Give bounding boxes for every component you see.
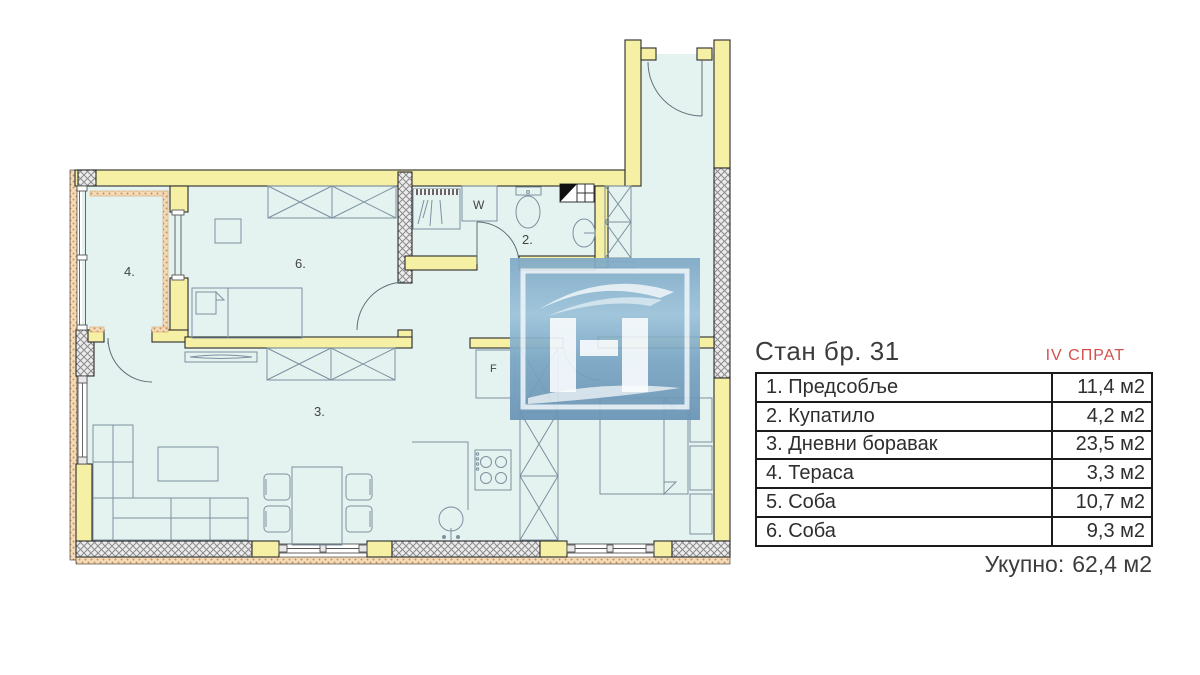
table-row: 2. Купатило 4,2 м2 [757, 403, 1151, 432]
room-area: 3,3 м2 [1053, 460, 1151, 487]
apartment-info-panel: Стан бр. 31 IV СПРАТ 1. Предсобље 11,4 м… [755, 333, 1153, 578]
room-area: 23,5 м2 [1053, 432, 1151, 459]
panel-header: Стан бр. 31 IV СПРАТ [755, 333, 1153, 367]
room-area: 11,4 м2 [1053, 374, 1151, 401]
room-name: 5. Соба [757, 489, 1053, 516]
room-name: 2. Купатило [757, 403, 1053, 430]
room-area: 9,3 м2 [1053, 518, 1151, 545]
fridge-label: F [490, 363, 497, 375]
total-value: 62,4 м2 [1072, 551, 1152, 578]
table-row: 5. Соба 10,7 м2 [757, 489, 1151, 518]
electrical-panel-icon [560, 184, 594, 202]
room-name: 6. Соба [757, 518, 1053, 545]
room-name: 3. Дневни боравак [757, 432, 1053, 459]
room-label-bathroom: 2. [522, 232, 533, 247]
total-label: Укупно: [984, 551, 1064, 578]
room-area: 10,7 м2 [1053, 489, 1151, 516]
room-name: 1. Предсобље [757, 374, 1053, 401]
table-row: 4. Тераса 3,3 м2 [757, 460, 1151, 489]
floor-label: IV СПРАТ [1046, 347, 1125, 367]
washer-label: W [473, 198, 485, 212]
room-area: 4,2 м2 [1053, 403, 1151, 430]
room-label-terrace: 4. [124, 264, 135, 279]
room-label-room6: 6. [295, 256, 306, 271]
table-row: 1. Предсобље 11,4 м2 [757, 374, 1151, 403]
floor-plan-page: 4. 6. 2. 3. W F Стан бр. 31 IV СПРАТ 1. … [0, 0, 1200, 675]
table-row: 6. Соба 9,3 м2 [757, 518, 1151, 545]
total-row: Укупно: 62,4 м2 [755, 551, 1153, 578]
apartment-title: Стан бр. 31 [755, 336, 900, 367]
watermark-logo [510, 258, 700, 420]
room-name: 4. Тераса [757, 460, 1053, 487]
room-label-living: 3. [314, 404, 325, 419]
table-row: 3. Дневни боравак 23,5 м2 [757, 432, 1151, 461]
area-table: 1. Предсобље 11,4 м2 2. Купатило 4,2 м2 … [755, 372, 1153, 547]
